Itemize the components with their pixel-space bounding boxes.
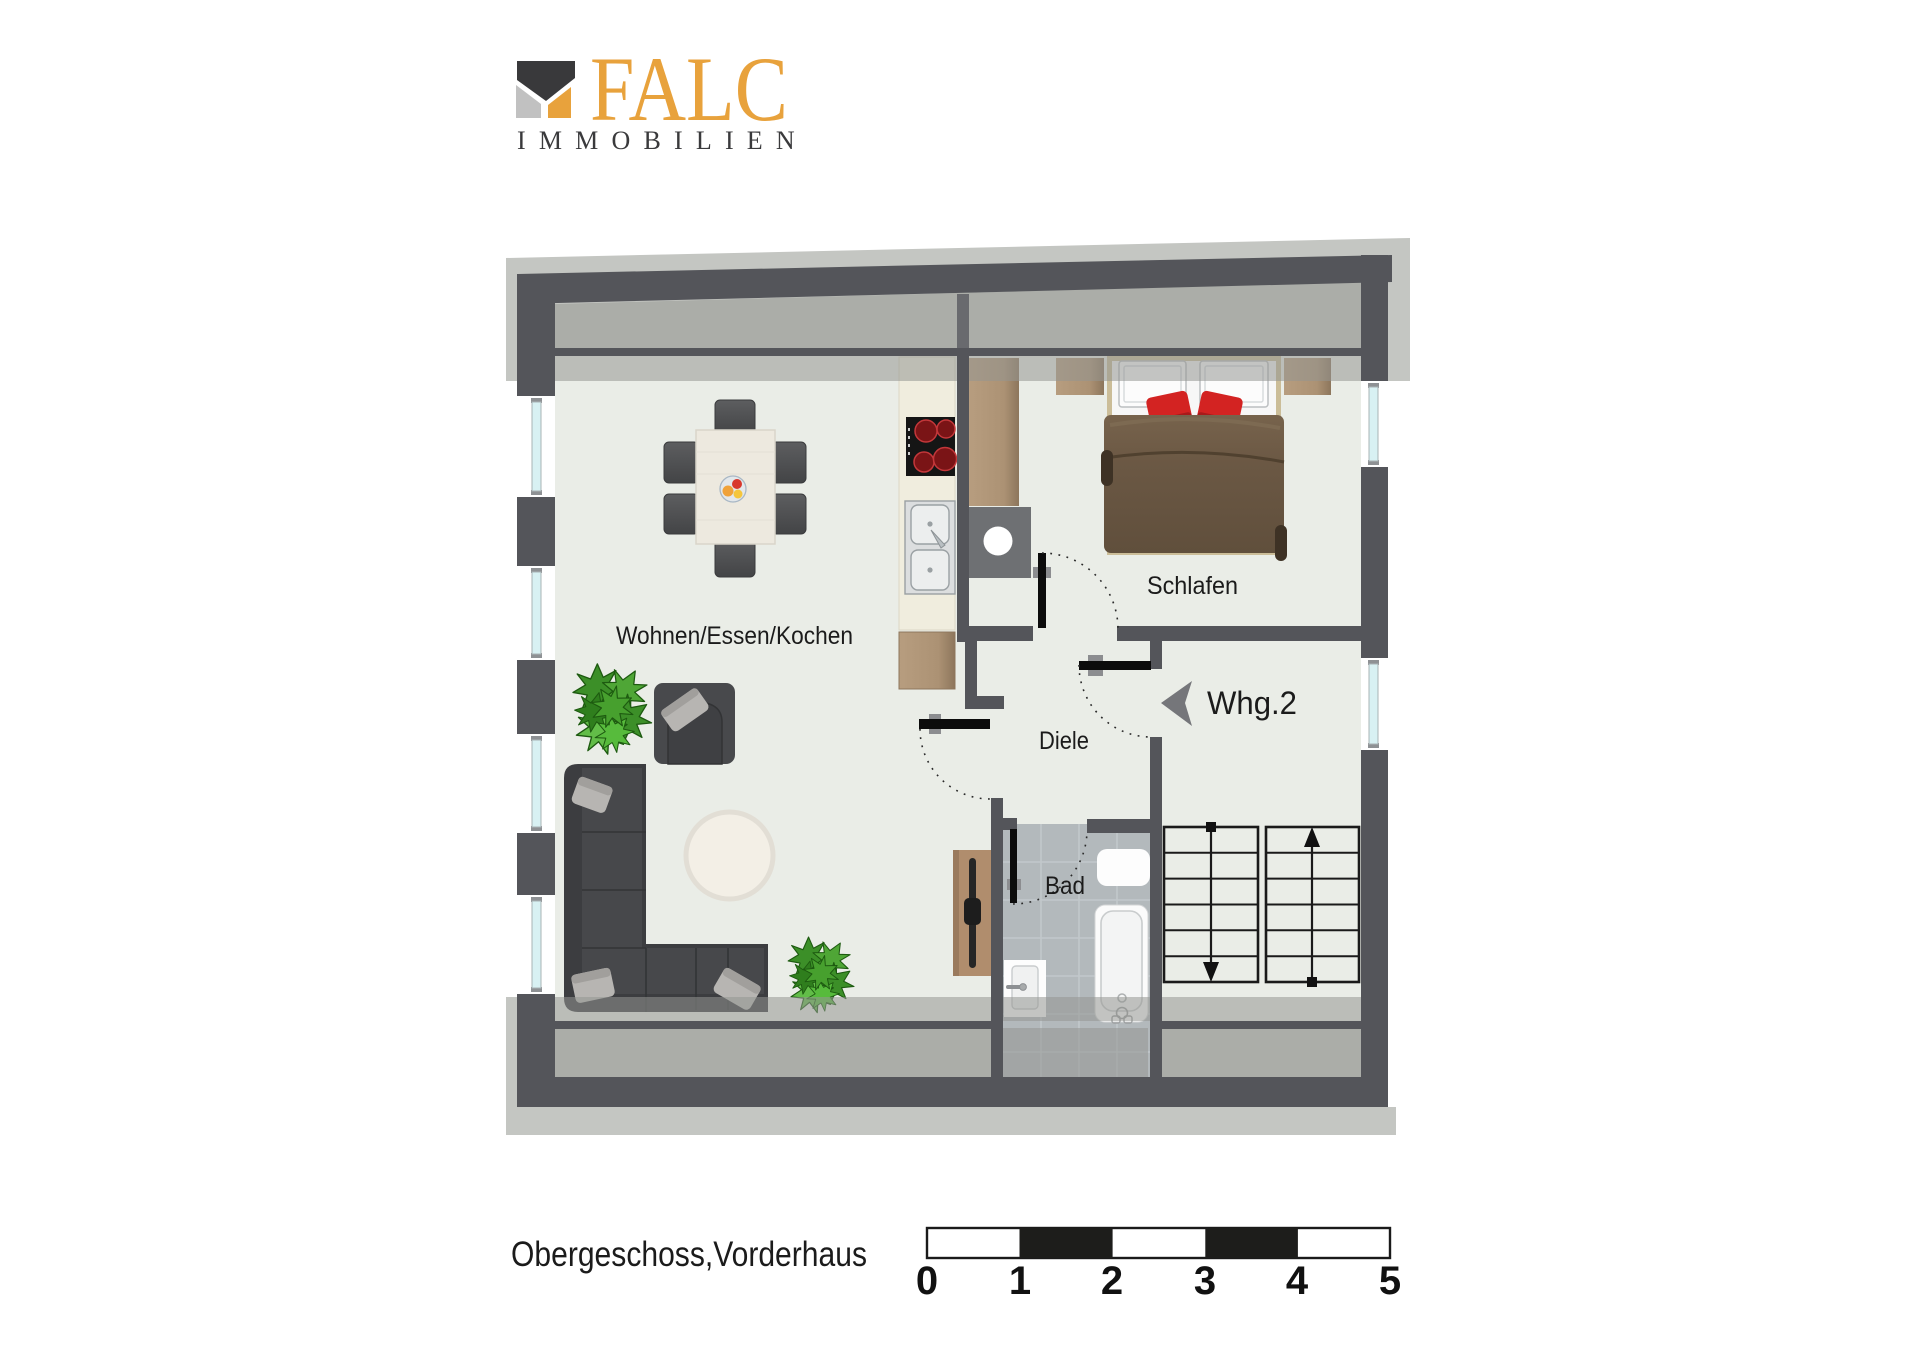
svg-text:Wohnen/Essen/Kochen: Wohnen/Essen/Kochen [616,622,853,650]
svg-text:IMMOBILIEN: IMMOBILIEN [517,126,808,155]
svg-text:4: 4 [1286,1259,1309,1303]
svg-text:Whg.2: Whg.2 [1207,685,1297,721]
svg-text:FALC: FALC [590,38,788,140]
svg-text:0: 0 [916,1259,938,1303]
svg-text:5: 5 [1379,1259,1401,1303]
svg-text:1: 1 [1009,1259,1031,1303]
svg-text:3: 3 [1194,1259,1216,1303]
svg-text:Schlafen: Schlafen [1147,572,1238,600]
svg-text:Obergeschoss,Vorderhaus: Obergeschoss,Vorderhaus [511,1235,867,1274]
svg-text:Bad: Bad [1045,872,1085,900]
svg-text:2: 2 [1101,1259,1123,1303]
svg-text:Diele: Diele [1039,727,1089,755]
